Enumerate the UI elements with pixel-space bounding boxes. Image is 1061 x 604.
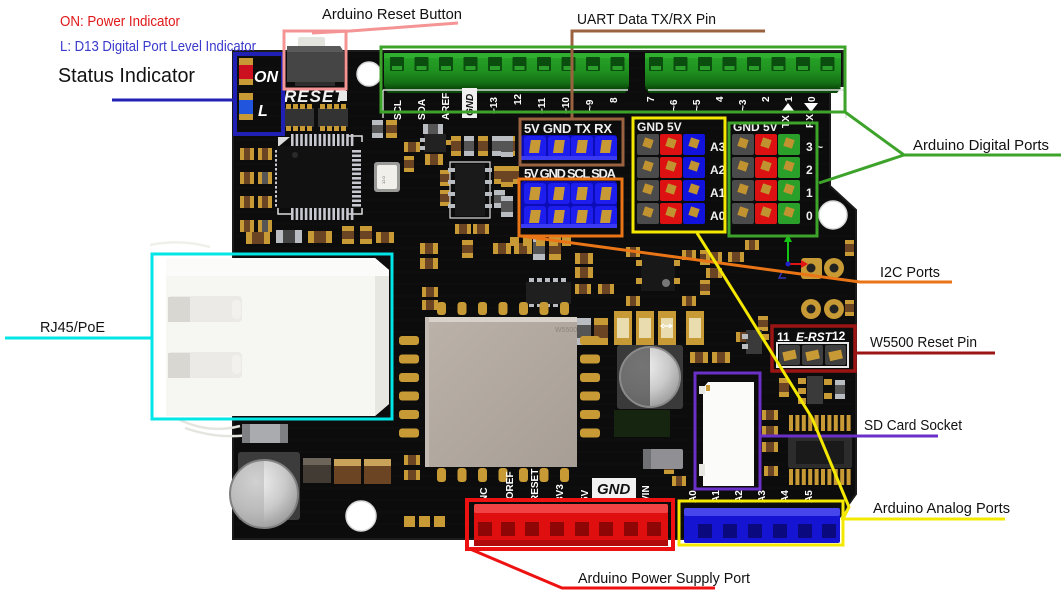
svg-text:ON: Power Indicator: ON: Power Indicator [60,14,180,30]
svg-text:5V GND TX RX: 5V GND TX RX [524,121,612,136]
svg-text:7: 7 [646,96,657,102]
svg-text:3 ~: 3 ~ [806,140,823,154]
svg-text:SCL: SCL [393,100,404,120]
svg-text:A1: A1 [710,186,726,200]
svg-text:RX: RX [805,114,816,128]
svg-text:~6: ~6 [669,99,680,111]
svg-text:SD Card Socket: SD Card Socket [864,417,963,434]
svg-text:12: 12 [513,93,524,105]
svg-text:W5500: W5500 [555,327,577,334]
svg-text:A2: A2 [710,163,726,177]
svg-text:W5500 Reset Pin: W5500 Reset Pin [870,334,977,351]
svg-text:TX: TX [781,115,792,128]
svg-text:I2C Ports: I2C Ports [880,264,940,281]
svg-text:2: 2 [761,96,772,102]
svg-text:GND 5V: GND 5V [637,120,682,134]
svg-text:GND: GND [597,481,631,498]
svg-text:SDA: SDA [417,99,428,120]
svg-text:Status Indicator: Status Indicator [58,65,195,87]
svg-text:ON: ON [254,69,278,86]
svg-text:~3: ~3 [738,99,749,111]
svg-text:4: 4 [715,96,726,102]
svg-text:Arduino Power Supply Port: Arduino Power Supply Port [578,570,751,587]
svg-text:11: 11 [777,330,790,344]
svg-text:12: 12 [832,329,846,343]
svg-text:~5: ~5 [692,99,703,111]
svg-text:L: D13 Digital Port Level Indi: L: D13 Digital Port Level Indicator [60,39,256,55]
svg-text:L: L [258,103,268,120]
svg-text:A3: A3 [710,140,726,154]
svg-text:Arduino Reset Button: Arduino Reset Button [322,6,462,23]
svg-text:1: 1 [784,96,795,102]
svg-text:A0: A0 [710,209,726,223]
svg-text:Arduino Digital Ports: Arduino Digital Ports [913,137,1049,154]
svg-text:0: 0 [806,209,813,223]
svg-text:12.0: 12.0 [381,175,386,184]
svg-text:RESET: RESET [530,469,541,502]
svg-text:UART Data TX/RX Pin: UART Data TX/RX Pin [577,11,716,28]
svg-text:RJ45/PoE: RJ45/PoE [40,319,105,336]
svg-text:1: 1 [806,186,813,200]
svg-text:2: 2 [806,163,813,177]
svg-text:8: 8 [609,97,620,103]
svg-text:E-RST: E-RST [796,330,834,344]
svg-text:Arduino Analog Ports: Arduino Analog Ports [873,500,1010,517]
svg-text:0: 0 [807,96,818,102]
svg-text:IOREF: IOREF [505,471,516,502]
svg-text:AREF: AREF [441,93,452,120]
svg-text:~9: ~9 [585,99,596,111]
